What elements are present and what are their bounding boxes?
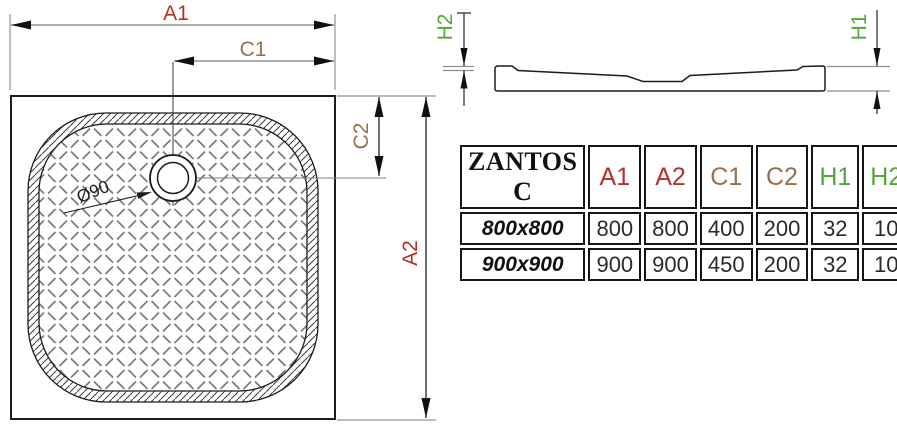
dim-arrow-icon xyxy=(375,97,384,117)
spec-sheet: Ø90 A1 C1 C2 A2 xyxy=(0,0,897,435)
col-header-c1: C1 xyxy=(700,145,753,209)
dim-label-c2: C2 xyxy=(350,123,373,150)
plan-view: Ø90 A1 C1 C2 A2 xyxy=(10,2,436,420)
dim-label-c1: C1 xyxy=(240,38,267,61)
value-cell-h2: 10 xyxy=(862,212,897,245)
col-header-a1: A1 xyxy=(588,145,641,209)
dim-arrow-icon xyxy=(874,48,881,66)
value-cell-a1: 900 xyxy=(588,248,641,281)
size-cell: 900x900 xyxy=(460,248,585,281)
col-header-h1: H1 xyxy=(811,145,859,209)
dim-arrow-icon xyxy=(874,91,881,109)
value-cell-c2: 200 xyxy=(756,212,809,245)
drain-inner-circle xyxy=(158,163,189,194)
spec-table: ZANTOS C A1 A2 C1 C2 H1 H2 800x800 800 8… xyxy=(457,142,897,284)
value-cell-a1: 800 xyxy=(588,212,641,245)
col-header-a2: A2 xyxy=(644,145,697,209)
col-header-c2: C2 xyxy=(756,145,809,209)
value-cell-c2: 200 xyxy=(756,248,809,281)
dim-label-h1: H1 xyxy=(848,14,871,41)
dim-label-a1: A1 xyxy=(163,2,189,25)
value-cell-h1: 32 xyxy=(811,212,859,245)
value-cell-h2: 10 xyxy=(862,248,897,281)
dim-label-a2: A2 xyxy=(399,240,422,266)
col-header-h2: H2 xyxy=(862,145,897,209)
dim-arrow-icon xyxy=(461,71,468,89)
profile-view: H2 H1 xyxy=(434,10,890,114)
dim-arrow-icon xyxy=(314,57,334,66)
dim-label-h2: H2 xyxy=(434,14,457,41)
value-cell-c1: 450 xyxy=(700,248,753,281)
dim-arrow-icon xyxy=(174,57,194,66)
dim-arrow-icon xyxy=(11,21,31,30)
table-row: 900x900 900 900 450 200 32 10 xyxy=(460,248,897,281)
value-cell-h1: 32 xyxy=(811,248,859,281)
table-title: ZANTOS C xyxy=(460,145,585,209)
size-cell: 800x800 xyxy=(460,212,585,245)
dim-arrow-icon xyxy=(375,156,384,176)
value-cell-a2: 900 xyxy=(644,248,697,281)
dim-arrow-icon xyxy=(461,48,468,66)
profile-outline xyxy=(495,66,825,91)
dim-arrow-icon xyxy=(314,21,334,30)
value-cell-a2: 800 xyxy=(644,212,697,245)
dim-arrow-icon xyxy=(422,398,431,418)
table-row: 800x800 800 800 400 200 32 10 xyxy=(460,212,897,245)
dim-arrow-icon xyxy=(422,97,431,117)
value-cell-c1: 400 xyxy=(700,212,753,245)
table-header-row: ZANTOS C A1 A2 C1 C2 H1 H2 xyxy=(460,145,897,209)
